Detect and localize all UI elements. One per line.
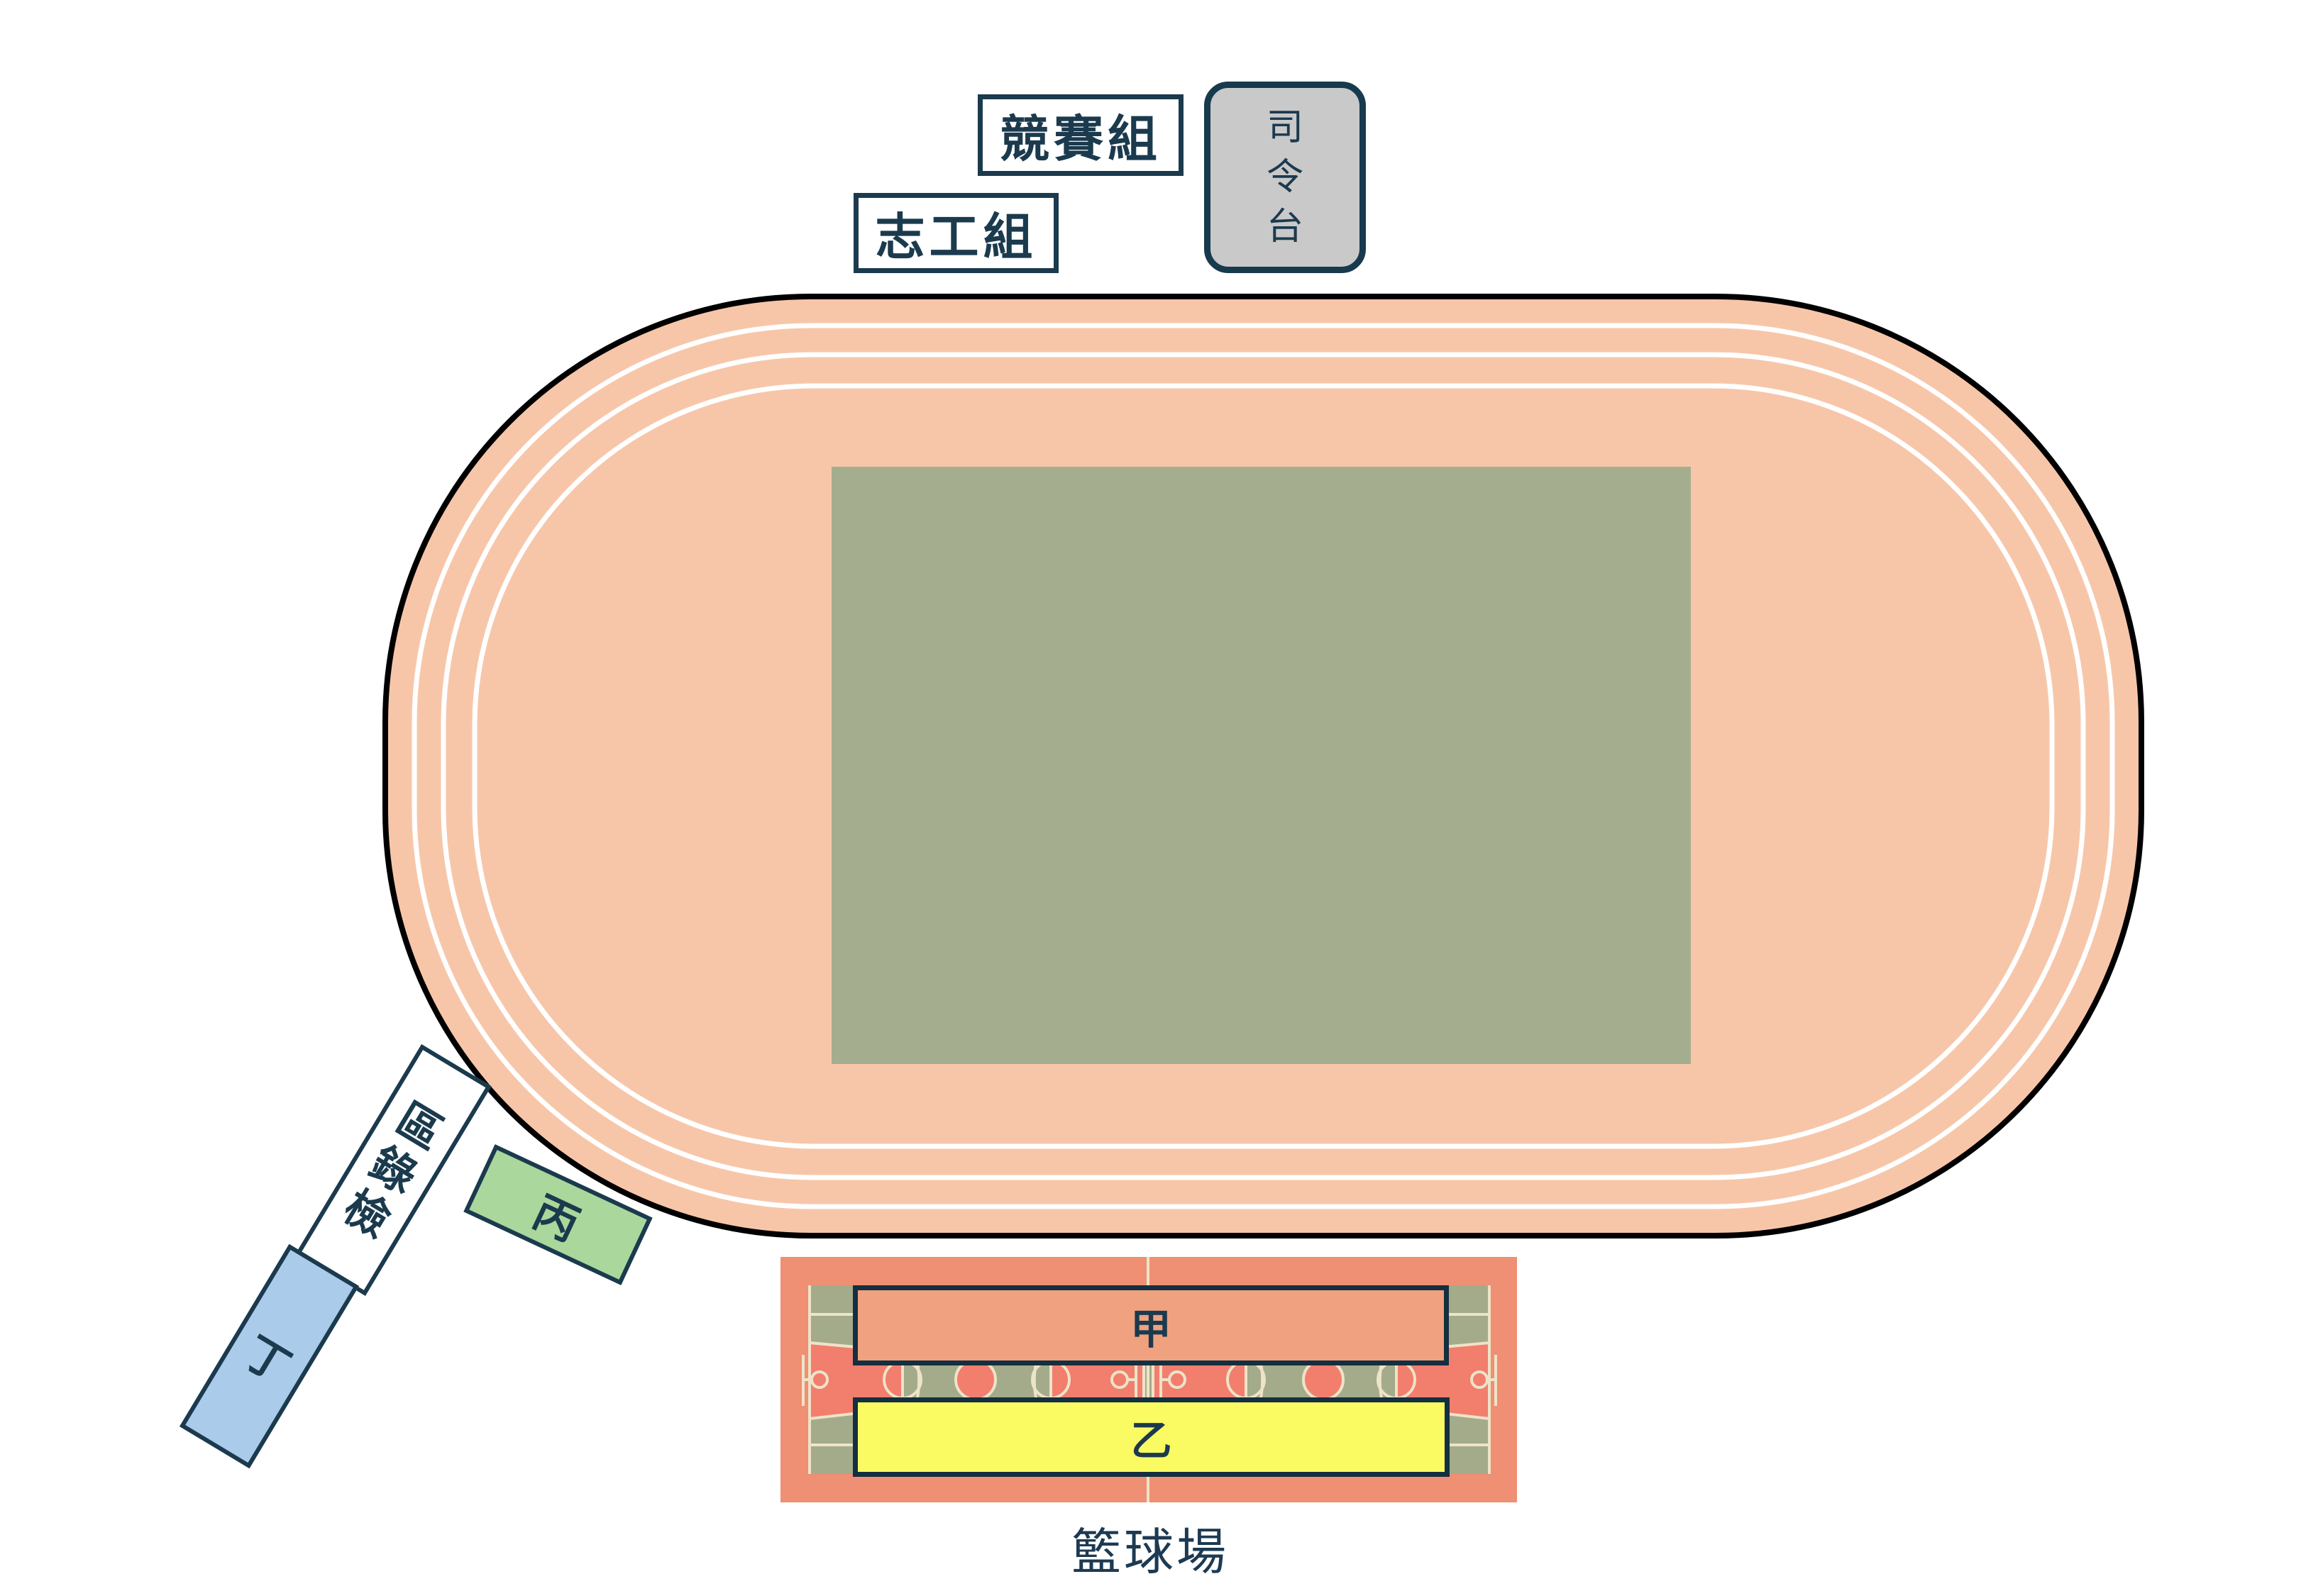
zone-yi-label: 乙 <box>1130 1407 1171 1467</box>
command-platform-label: 司令台 <box>1210 88 1359 267</box>
basketball-court-caption: 籃球場 <box>1008 1512 1292 1584</box>
competition-group-box: 競賽組 <box>978 94 1184 176</box>
center-circle-a <box>956 1360 995 1400</box>
zone-jia-box: 甲 <box>853 1285 1449 1365</box>
volunteer-group-box: 志工組 <box>854 193 1059 273</box>
zone-bing-label: 丙 <box>524 1177 591 1253</box>
center-circle-b <box>1303 1360 1343 1400</box>
competition-group-label: 競賽組 <box>1000 99 1162 171</box>
volunteer-group-label: 志工組 <box>876 197 1037 269</box>
infield <box>832 467 1691 1064</box>
command-platform-box: 司令台 <box>1204 82 1366 273</box>
running-track <box>385 297 2141 1236</box>
zone-jia-label: 甲 <box>1130 1296 1171 1356</box>
zone-ding-label: 丁 <box>234 1317 305 1395</box>
zone-yi-box: 乙 <box>853 1397 1450 1477</box>
